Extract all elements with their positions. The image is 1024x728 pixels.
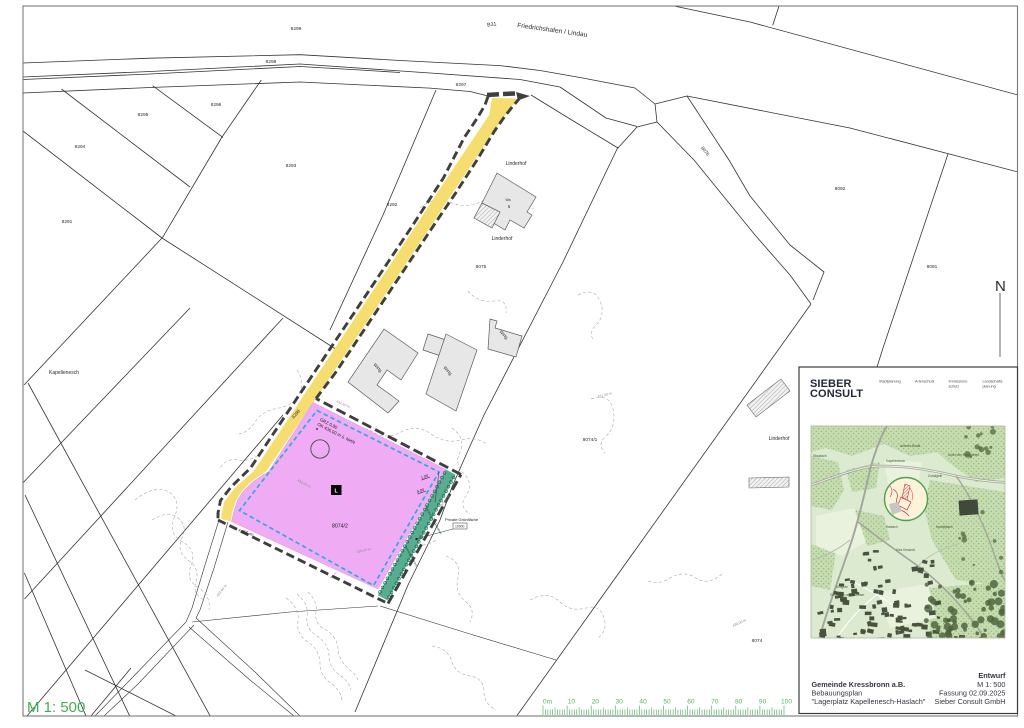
svg-text:8074/2: 8074/2	[332, 524, 348, 530]
svg-text:Gmaschen am Aabroser: Gmaschen am Aabroser	[830, 593, 865, 597]
svg-text:8293: 8293	[286, 163, 297, 169]
svg-text:Private Grünfläche: Private Grünfläche	[445, 517, 479, 522]
svg-text:Zumägele: Zumägele	[928, 474, 942, 478]
svg-text:40: 40	[639, 699, 647, 706]
svg-text:planung: planung	[983, 385, 996, 389]
svg-text:Linderhof: Linderhof	[492, 236, 513, 242]
svg-text:100: 100	[781, 699, 792, 706]
svg-text:Immissions-: Immissions-	[949, 380, 969, 384]
svg-text:8074/1: 8074/1	[583, 437, 598, 443]
svg-text:Wa: Wa	[506, 198, 511, 202]
svg-text:60: 60	[687, 699, 695, 706]
svg-text:30: 30	[616, 699, 624, 706]
svg-text:Artenschutz: Artenschutz	[915, 380, 935, 384]
svg-text:Hauteljäsch: Hauteljäsch	[936, 525, 953, 529]
svg-text:Linderhof: Linderhof	[769, 436, 790, 442]
svg-text:Almgrde: Almgrde	[836, 585, 848, 589]
svg-text:0m: 0m	[543, 699, 553, 706]
svg-text:50: 50	[663, 699, 671, 706]
svg-text:Staudach: Staudach	[813, 454, 827, 458]
svg-text:8299: 8299	[291, 26, 302, 32]
svg-text:Stadtplanung: Stadtplanung	[879, 380, 901, 384]
svg-text:8291: 8291	[62, 219, 73, 225]
svg-text:Unter den Weingärten: Unter den Weingärten	[948, 453, 979, 457]
svg-text:Haslach: Haslach	[886, 525, 898, 529]
svg-text:10: 10	[568, 699, 576, 706]
svg-text:N: N	[995, 278, 1006, 295]
svg-text:Unteres Büalä: Unteres Büalä	[900, 444, 920, 448]
svg-text:20: 20	[592, 699, 600, 706]
svg-text:8296: 8296	[211, 102, 222, 108]
svg-text:8298: 8298	[266, 59, 277, 65]
svg-text:8091: 8091	[927, 264, 938, 270]
svg-text:Kapellenesch: Kapellenesch	[49, 370, 79, 376]
svg-text:Landschafts-: Landschafts-	[983, 380, 1005, 384]
svg-text:90: 90	[759, 699, 767, 706]
svg-text:"Lagerplatz Kapellenesch-Hasla: "Lagerplatz Kapellenesch-Haslach"	[812, 697, 926, 706]
svg-text:80: 80	[735, 699, 743, 706]
svg-text:10000: 10000	[455, 525, 465, 529]
svg-text:8297: 8297	[456, 82, 467, 88]
svg-text:CONSULT: CONSULT	[810, 388, 863, 400]
svg-text:Kapellenesch: Kapellenesch	[886, 459, 905, 463]
svg-text:8075: 8075	[476, 264, 487, 270]
svg-text:Sieber Consult GmbH: Sieber Consult GmbH	[935, 697, 1006, 706]
svg-text:70: 70	[711, 699, 719, 706]
svg-text:schutz: schutz	[949, 385, 960, 389]
svg-text:8294: 8294	[75, 144, 86, 150]
svg-text:Kies Kesserä: Kies Kesserä	[896, 548, 915, 552]
svg-text:Linderhof: Linderhof	[506, 161, 527, 167]
svg-text:M 1: 500: M 1: 500	[27, 699, 85, 716]
svg-text:8292: 8292	[387, 202, 398, 208]
svg-text:8074: 8074	[752, 638, 763, 644]
svg-text:8092: 8092	[835, 186, 846, 192]
svg-text:8295: 8295	[138, 112, 149, 118]
svg-text:Entwurf: Entwurf	[978, 671, 1006, 680]
